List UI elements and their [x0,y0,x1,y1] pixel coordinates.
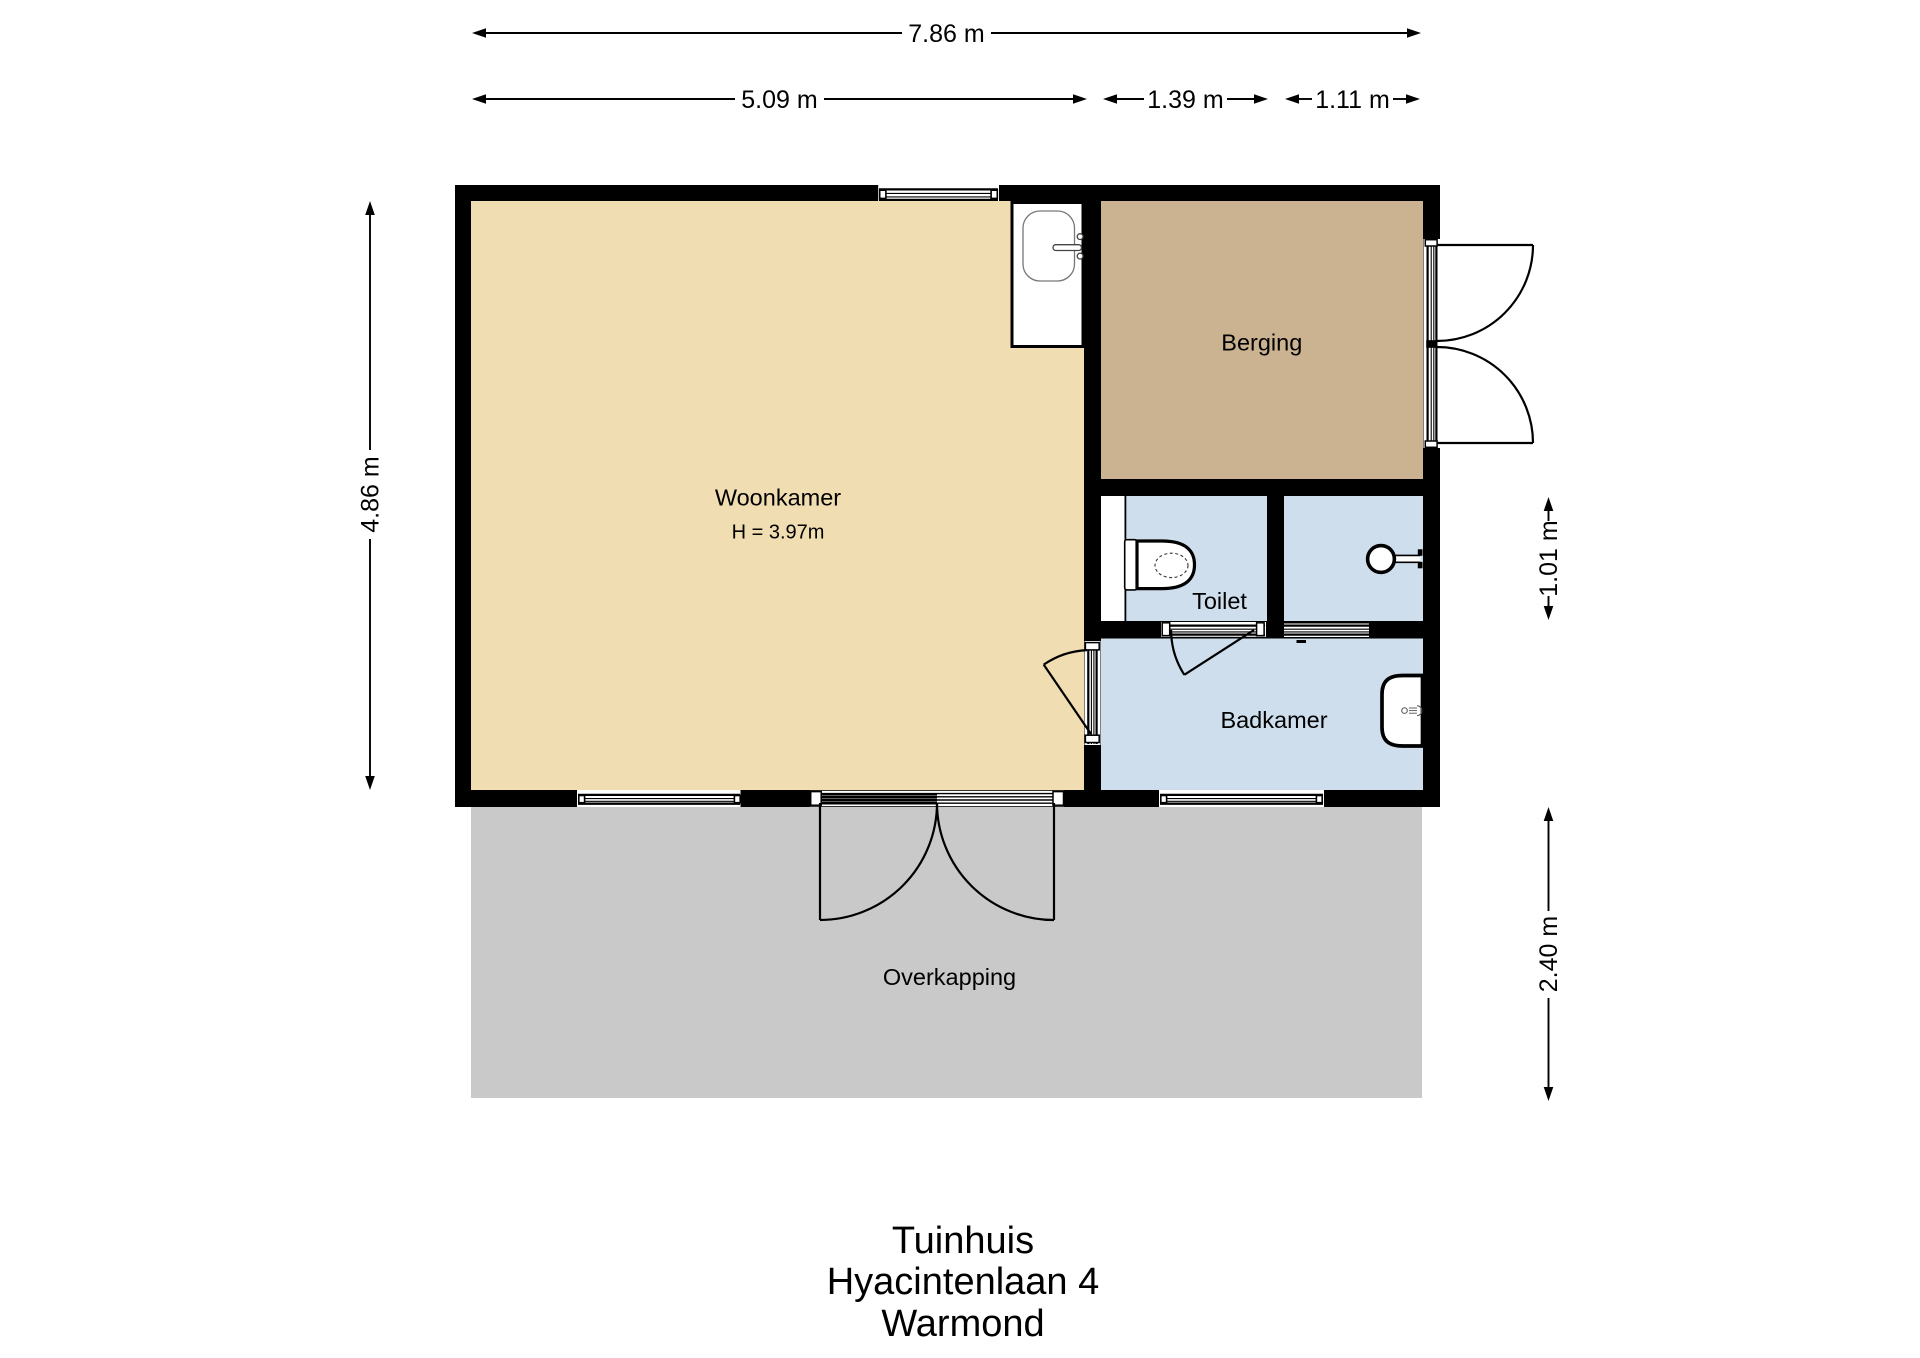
svg-text:1.01 m: 1.01 m [1535,520,1563,596]
svg-text:Tuinhuis: Tuinhuis [892,1220,1034,1262]
svg-text:Warmond: Warmond [881,1303,1044,1345]
svg-text:5.09 m: 5.09 m [741,86,817,114]
svg-text:2.40 m: 2.40 m [1535,916,1563,992]
svg-text:Toilet: Toilet [1192,588,1247,614]
svg-text:Overkapping: Overkapping [883,964,1016,990]
svg-text:Berging: Berging [1221,330,1302,356]
svg-text:Hyacintenlaan 4: Hyacintenlaan 4 [827,1261,1100,1303]
svg-text:4.86 m: 4.86 m [357,456,385,532]
svg-text:H = 3.97m: H = 3.97m [732,522,825,544]
svg-text:Woonkamer: Woonkamer [715,485,841,511]
svg-text:Badkamer: Badkamer [1220,707,1327,733]
svg-text:1.39 m: 1.39 m [1147,86,1223,114]
svg-text:1.11 m: 1.11 m [1315,86,1390,114]
svg-text:7.86 m: 7.86 m [908,20,984,48]
